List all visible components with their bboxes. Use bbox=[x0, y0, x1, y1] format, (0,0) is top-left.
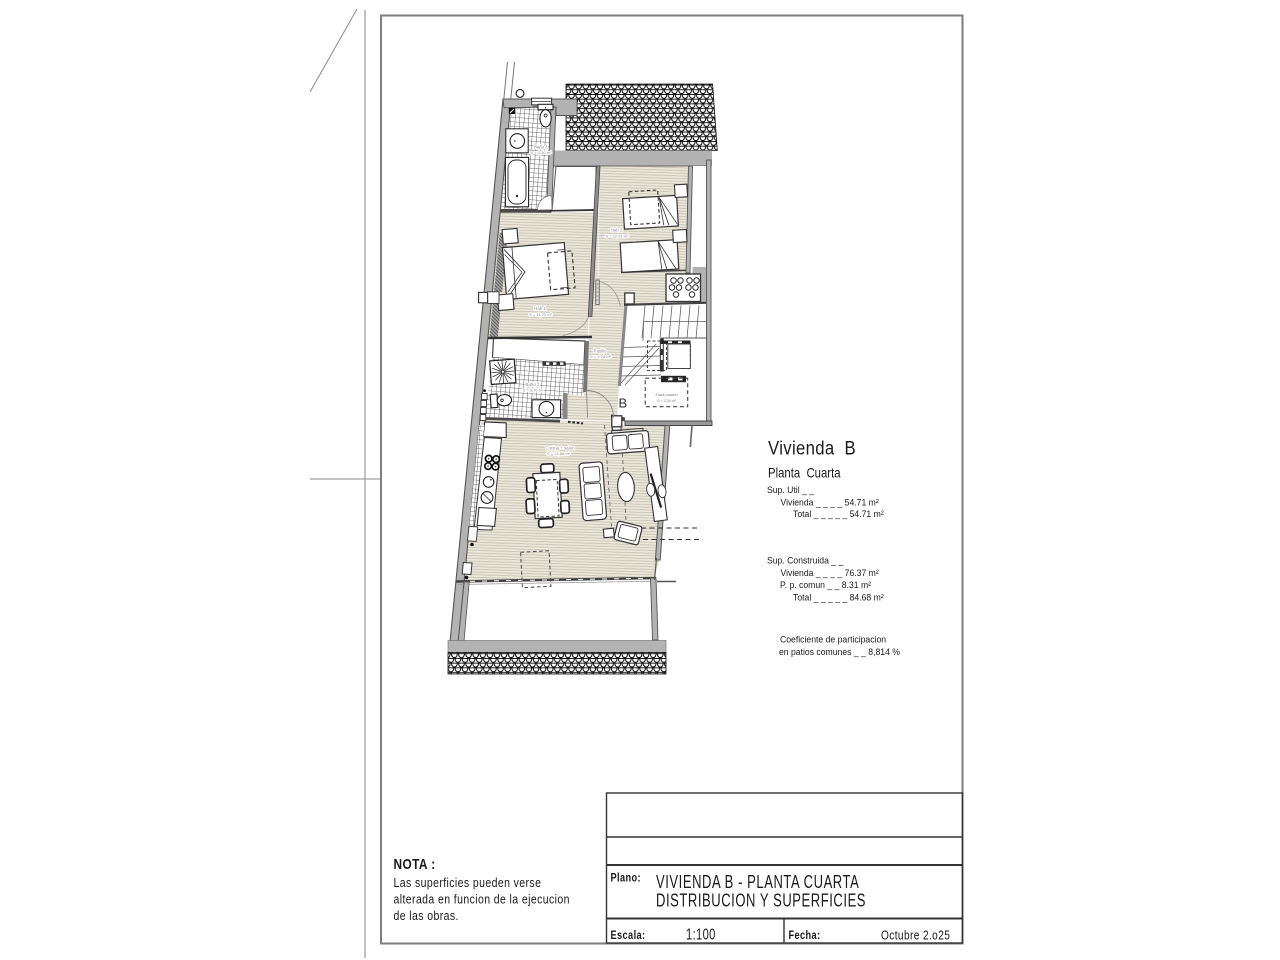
svg-text:Baño 2: Baño 2 bbox=[526, 382, 540, 387]
svg-text:S = 21,86 m²: S = 21,86 m² bbox=[547, 451, 571, 456]
svg-text:Escala:: Escala: bbox=[611, 930, 646, 942]
svg-text:1:100: 1:100 bbox=[686, 926, 716, 943]
svg-text:S = 2,04 m²: S = 2,04 m² bbox=[657, 399, 676, 403]
svg-text:P. p. comun _ _ 8.31 m²: P. p. comun _ _ 8.31 m² bbox=[780, 580, 871, 591]
svg-text:Plano:: Plano: bbox=[611, 873, 641, 885]
svg-text:NOTA :: NOTA : bbox=[394, 856, 436, 872]
svg-text:Zona comun: Zona comun bbox=[655, 392, 677, 397]
svg-text:S = 4,28 m²: S = 4,28 m² bbox=[590, 354, 611, 359]
svg-text:Total _ _ _ _ _ 54.71 m²: Total _ _ _ _ _ 54.71 m² bbox=[793, 509, 884, 520]
svg-text:Las superficies pueden verse: Las superficies pueden verse bbox=[394, 876, 542, 890]
svg-text:alterada en funcion de la ejec: alterada en funcion de la ejecucion bbox=[394, 893, 570, 907]
svg-text:Coeficiente de participacion: Coeficiente de participacion bbox=[780, 634, 886, 645]
svg-text:Sup. Construida _ _: Sup. Construida _ _ bbox=[767, 555, 844, 566]
svg-text:Hab 2: Hab 2 bbox=[611, 228, 623, 233]
svg-text:Octubre 2.o25: Octubre 2.o25 bbox=[881, 928, 950, 942]
svg-text:en patios comunes _ _ 8,814 %: en patios comunes _ _ 8,814 % bbox=[779, 647, 900, 658]
svg-text:Pasillo: Pasillo bbox=[594, 349, 607, 354]
svg-text:Hab 1: Hab 1 bbox=[534, 306, 546, 311]
svg-text:de las obras.: de las obras. bbox=[394, 909, 459, 923]
svg-text:Vivienda _ _ _ _ 76.37 m²: Vivienda _ _ _ _ 76.37 m² bbox=[781, 568, 879, 579]
svg-text:Planta Cuarta: Planta Cuarta bbox=[768, 464, 841, 481]
svg-text:Baño 1: Baño 1 bbox=[534, 145, 548, 150]
svg-text:S = 3,70 m²: S = 3,70 m² bbox=[523, 388, 544, 393]
svg-text:DISTRIBUCION Y SUPERFICIES: DISTRIBUCION Y SUPERFICIES bbox=[656, 890, 866, 911]
svg-text:B: B bbox=[619, 396, 628, 411]
svg-text:S = 12,91 m²: S = 12,91 m² bbox=[605, 234, 629, 239]
svg-text:S = 3,30 m²: S = 3,30 m² bbox=[531, 150, 552, 155]
svg-text:Vivienda B: Vivienda B bbox=[768, 438, 856, 459]
svg-text:S = 11,20 m²: S = 11,20 m² bbox=[529, 312, 552, 317]
svg-text:Fecha:: Fecha: bbox=[789, 930, 821, 942]
svg-text:Sup. Util _ _: Sup. Util _ _ bbox=[767, 485, 815, 496]
svg-text:Vivienda _ _ _ _ 54.71 m²: Vivienda _ _ _ _ 54.71 m² bbox=[781, 497, 879, 508]
svg-text:Cocina + salon: Cocina + salon bbox=[545, 446, 575, 451]
svg-text:Total _ _ _ _ _ 84.68 m²: Total _ _ _ _ _ 84.68 m² bbox=[793, 592, 884, 603]
